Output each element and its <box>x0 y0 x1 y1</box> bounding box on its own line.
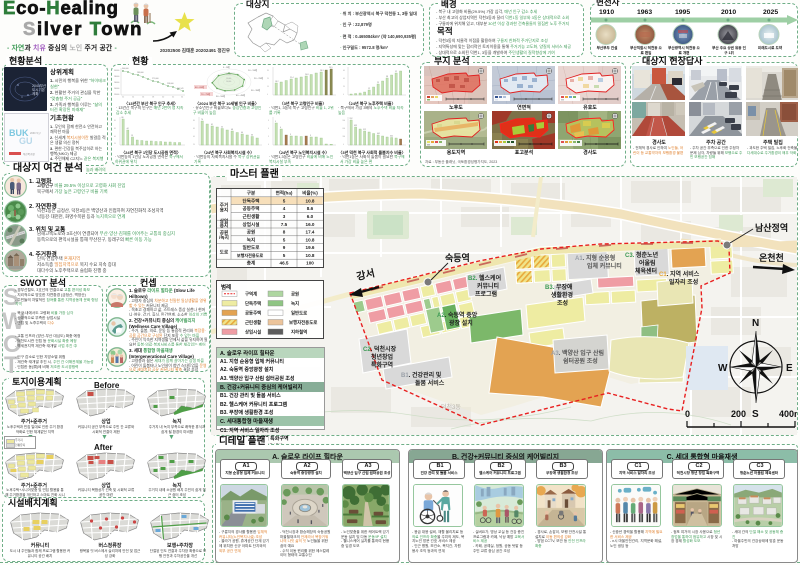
svg-text:0: 0 <box>267 94 268 96</box>
svg-text:55: 55 <box>221 127 223 129</box>
svg-text:6: 6 <box>280 127 281 129</box>
svg-text:'16: '16 <box>142 97 144 99</box>
svg-text:B1. 건강관리 및: B1. 건강관리 및 <box>401 371 442 379</box>
svg-text:28.3: 28.3 <box>320 70 324 72</box>
svg-text:돌봄 서비스: 돌봄 서비스 <box>415 379 445 387</box>
svg-text:80: 80 <box>114 120 116 122</box>
svg-text:244,141: 244,141 <box>177 88 184 90</box>
svg-text:9: 9 <box>268 120 269 122</box>
svg-text:쉼터공원 조성: 쉼터공원 조성 <box>563 357 598 365</box>
svg-text:80: 80 <box>193 120 195 122</box>
svg-text:40: 40 <box>343 78 345 80</box>
svg-text:녹지: 녹지 <box>247 236 255 243</box>
svg-text:258,000: 258,000 <box>167 83 174 85</box>
svg-text:3: 3 <box>290 134 291 136</box>
svg-text:24.8: 24.8 <box>305 74 309 76</box>
svg-text:어울림: 어울림 <box>639 259 656 267</box>
svg-text:10.8: 10.8 <box>306 198 315 203</box>
svg-text:용지: 용지 <box>220 207 228 214</box>
svg-text:녹지: 녹지 <box>291 300 299 307</box>
svg-text:'20: '20 <box>162 97 164 99</box>
svg-text:40: 40 <box>241 132 243 134</box>
svg-text:상업시설: 상업시설 <box>245 329 261 336</box>
svg-text:280000: 280000 <box>114 76 119 78</box>
svg-text:온천천: 온천천 <box>759 253 784 263</box>
svg-text:4: 4 <box>283 206 286 211</box>
svg-text:입체 커뮤니티: 입체 커뮤니티 <box>587 262 622 270</box>
svg-text:48: 48 <box>231 129 233 131</box>
svg-text:900: 900 <box>343 120 346 122</box>
svg-text:8.6: 8.6 <box>307 206 314 211</box>
svg-text:6: 6 <box>268 128 269 130</box>
svg-text:단독주택: 단독주택 <box>245 300 261 307</box>
svg-text:7.5: 7.5 <box>281 222 288 227</box>
svg-text:공원: 공원 <box>291 291 299 298</box>
svg-text:15,000: 15,000 <box>226 78 231 80</box>
svg-text:40 - 49세: 40 - 49세 <box>236 93 245 97</box>
svg-text:60: 60 <box>343 70 345 72</box>
svg-text:A3. 백양산 입구 산림: A3. 백양산 입구 산림 <box>551 349 604 357</box>
svg-text:C1. 지역 서비스: C1. 지역 서비스 <box>659 270 700 278</box>
svg-text:지하철역: 지하철역 <box>291 329 307 336</box>
svg-text:면적(ha): 면적(ha) <box>276 190 293 197</box>
svg-text:86: 86 <box>122 117 124 119</box>
svg-text:3: 3 <box>283 214 286 219</box>
svg-text:5: 5 <box>283 198 286 203</box>
svg-text:부산북구청: 부산북구청 <box>23 152 35 156</box>
svg-text:3: 3 <box>268 136 269 138</box>
svg-text:20,000: 20,000 <box>226 74 231 76</box>
svg-text:60: 60 <box>114 128 116 130</box>
svg-text:400m: 400m <box>779 409 797 419</box>
svg-text:0: 0 <box>685 409 690 419</box>
svg-text:401: 401 <box>377 133 380 135</box>
svg-text:18.2: 18.2 <box>275 81 279 83</box>
svg-text:220000: 220000 <box>114 94 119 96</box>
svg-text:'24: '24 <box>181 97 183 99</box>
svg-text:17.4: 17.4 <box>306 230 315 235</box>
svg-text:GU: GU <box>19 136 33 146</box>
svg-text:20: 20 <box>267 78 269 80</box>
svg-text:도로: 도로 <box>220 249 229 255</box>
svg-text:보행자전용도로: 보행자전용도로 <box>289 319 317 326</box>
svg-text:B2. 헬스케어: B2. 헬스케어 <box>468 274 501 282</box>
svg-text:0: 0 <box>268 144 269 146</box>
svg-text:16.0: 16.0 <box>306 222 315 227</box>
svg-text:근린생활: 근린생활 <box>243 213 261 220</box>
svg-text:20: 20 <box>114 143 116 145</box>
svg-text:302: 302 <box>390 136 393 138</box>
svg-text:271,000: 271,000 <box>152 78 159 80</box>
svg-text:29.5: 29.5 <box>329 67 333 69</box>
svg-text:21.4: 21.4 <box>290 77 294 79</box>
svg-text:19.6: 19.6 <box>306 245 315 250</box>
svg-text:30: 30 <box>267 70 269 72</box>
svg-text:공동주택: 공동주택 <box>245 310 261 317</box>
svg-text:74: 74 <box>201 119 203 121</box>
svg-text:20: 20 <box>193 144 195 146</box>
svg-text:240000: 240000 <box>114 88 119 90</box>
svg-text:633: 633 <box>354 125 357 127</box>
svg-text:일자리 조성: 일자리 조성 <box>669 278 698 286</box>
svg-text:10: 10 <box>267 86 269 88</box>
svg-text:30 - 39세: 30 - 39세 <box>251 88 260 92</box>
svg-text:3: 3 <box>310 135 311 137</box>
svg-text:일반도로: 일반도로 <box>243 244 261 251</box>
svg-text:40: 40 <box>114 136 116 138</box>
svg-text:총계: 총계 <box>247 260 255 267</box>
svg-text:계획: 계획 <box>32 91 38 96</box>
svg-text:S: S <box>752 409 759 420</box>
svg-text:300,000: 300,000 <box>122 68 129 70</box>
svg-text:공동주택: 공동주택 <box>243 205 260 212</box>
svg-text:근린생활: 근린생활 <box>245 319 261 326</box>
svg-text:일반도로: 일반도로 <box>291 310 307 317</box>
svg-text:20 - 29세: 20 - 29세 <box>254 76 263 80</box>
svg-text:2030 북구: 2030 북구 <box>30 131 42 135</box>
svg-text:10 - 19세: 10 - 19세 <box>248 68 257 72</box>
svg-text:300: 300 <box>343 136 346 138</box>
svg-text:5: 5 <box>283 237 286 242</box>
svg-text:46.5: 46.5 <box>280 261 289 266</box>
svg-text:남산정역: 남산정역 <box>755 222 788 233</box>
svg-text:200: 200 <box>731 409 746 419</box>
svg-text:A2. 숙등역 중앙: A2. 숙등역 중앙 <box>437 311 478 319</box>
svg-text:프로그램: 프로그램 <box>475 290 497 298</box>
svg-text:52: 52 <box>395 71 397 73</box>
svg-text:0 - 9세: 0 - 9세 <box>223 65 229 69</box>
svg-text:25: 25 <box>377 82 379 84</box>
svg-text:44: 44 <box>127 128 129 130</box>
svg-text:0: 0 <box>343 144 344 146</box>
svg-text:600: 600 <box>343 128 346 130</box>
svg-text:C3. 청춘노년: C3. 청춘노년 <box>625 251 659 259</box>
svg-text:비율(%): 비율(%) <box>302 190 318 197</box>
svg-text:특화구역: 특화구역 <box>371 361 393 369</box>
svg-text:단독주택: 단독주택 <box>243 197 260 204</box>
svg-text:60: 60 <box>193 128 195 130</box>
svg-text:10.8: 10.8 <box>306 237 315 242</box>
svg-text:5: 5 <box>283 253 286 258</box>
svg-text:38: 38 <box>386 76 388 78</box>
svg-text:덕천3동: 덕천3동 <box>441 403 461 411</box>
svg-text:260000: 260000 <box>114 82 119 84</box>
svg-text:/녹지: /녹지 <box>219 234 229 241</box>
svg-text:A1. 지형 순응형: A1. 지형 순응형 <box>575 254 615 262</box>
svg-text:9: 9 <box>275 121 276 123</box>
svg-text:10,000: 10,000 <box>226 81 231 83</box>
svg-text:보행자전용도로: 보행자전용도로 <box>237 252 264 258</box>
svg-text:W: W <box>718 363 728 374</box>
svg-text:공원: 공원 <box>247 229 255 236</box>
svg-text:'12: '12 <box>122 97 124 99</box>
svg-text:6.0: 6.0 <box>307 214 314 219</box>
svg-text:청년창업: 청년창업 <box>371 353 393 361</box>
svg-text:구분: 구분 <box>247 190 256 197</box>
svg-text:19: 19 <box>131 135 133 137</box>
svg-text:숙등역: 숙등역 <box>445 252 470 263</box>
svg-text:12: 12 <box>368 88 370 90</box>
svg-text:조성: 조성 <box>557 299 568 307</box>
svg-text:20: 20 <box>343 86 345 88</box>
svg-text:8: 8 <box>283 230 286 235</box>
svg-text:B3. 무장애: B3. 무장애 <box>545 283 573 291</box>
svg-text:9: 9 <box>283 245 286 250</box>
svg-text:광장 설치: 광장 설치 <box>449 319 473 327</box>
svg-text:40: 40 <box>193 136 195 138</box>
svg-text:952: 952 <box>350 118 353 120</box>
svg-text:구역계: 구역계 <box>245 291 257 298</box>
svg-text:61: 61 <box>211 124 213 126</box>
svg-text:E: E <box>786 363 793 374</box>
svg-text:생활환경: 생활환경 <box>551 291 573 299</box>
svg-text:체육센터: 체육센터 <box>635 267 657 275</box>
svg-text:100: 100 <box>306 261 314 266</box>
svg-text:0: 0 <box>343 94 344 96</box>
svg-text:289,000: 289,000 <box>137 72 144 74</box>
svg-text:용지: 용지 <box>220 222 228 229</box>
svg-text:33: 33 <box>251 135 253 137</box>
svg-text:'18: '18 <box>152 97 154 99</box>
svg-text:상업시설: 상업시설 <box>243 221 260 228</box>
svg-text:'22: '22 <box>172 97 174 99</box>
svg-text:C2. 덕천시장: C2. 덕천시장 <box>363 345 397 353</box>
svg-text:300000: 300000 <box>114 70 119 72</box>
svg-text:10.8: 10.8 <box>306 253 315 258</box>
svg-text:커뮤니티: 커뮤니티 <box>477 282 499 290</box>
svg-text:N: N <box>752 318 759 329</box>
svg-text:'14: '14 <box>132 97 134 99</box>
svg-text:512: 512 <box>363 129 366 131</box>
